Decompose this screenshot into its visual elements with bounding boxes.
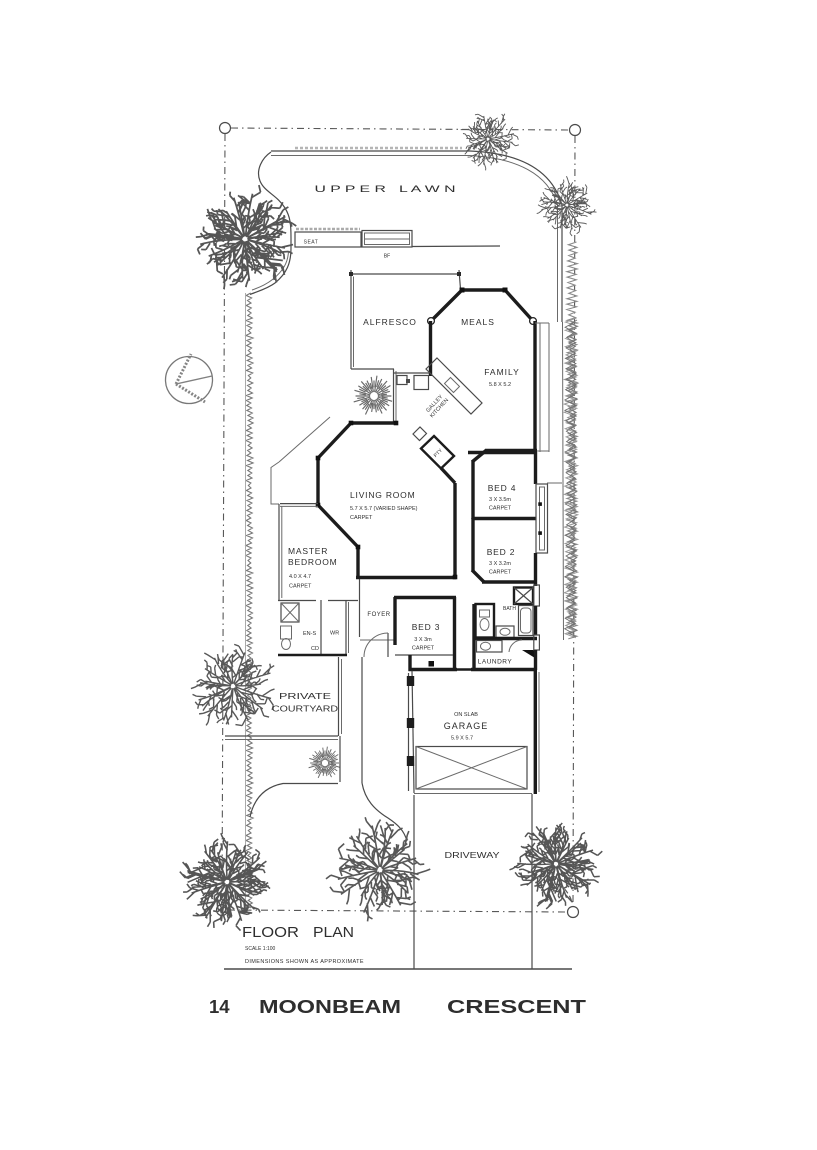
svg-text:BED 4: BED 4 bbox=[488, 483, 517, 493]
svg-text:CRESCENT: CRESCENT bbox=[447, 996, 587, 1017]
svg-text:4.0 X 4.7: 4.0 X 4.7 bbox=[289, 574, 311, 580]
svg-text:MEALS: MEALS bbox=[461, 317, 495, 327]
svg-text:EN-S: EN-S bbox=[303, 631, 316, 637]
svg-text:5.7 X 5.7 (VARIED SHAPE): 5.7 X 5.7 (VARIED SHAPE) bbox=[350, 506, 418, 512]
svg-text:FOYER: FOYER bbox=[367, 612, 390, 618]
svg-text:WR: WR bbox=[330, 631, 339, 637]
svg-text:CARPET: CARPET bbox=[412, 646, 435, 652]
svg-text:LAUNDRY: LAUNDRY bbox=[478, 659, 513, 666]
svg-text:FAMILY: FAMILY bbox=[484, 367, 520, 377]
svg-text:DIMENSIONS SHOWN AS APPROXIMAT: DIMENSIONS SHOWN AS APPROXIMATE bbox=[245, 959, 364, 965]
svg-text:GARAGE: GARAGE bbox=[444, 721, 489, 731]
svg-text:COURTYARD: COURTYARD bbox=[272, 704, 338, 714]
svg-text:CARPET: CARPET bbox=[489, 506, 512, 512]
svg-text:LIVING ROOM: LIVING ROOM bbox=[350, 490, 415, 500]
svg-text:BED 3: BED 3 bbox=[412, 622, 441, 632]
svg-text:BF: BF bbox=[384, 254, 390, 260]
svg-text:MASTER: MASTER bbox=[288, 546, 328, 556]
svg-text:PLAN: PLAN bbox=[313, 924, 354, 941]
svg-text:5.8 X 5.2: 5.8 X 5.2 bbox=[489, 382, 511, 388]
svg-text:MOONBEAM: MOONBEAM bbox=[259, 996, 401, 1017]
svg-text:BEDROOM: BEDROOM bbox=[288, 557, 338, 567]
svg-text:BED 2: BED 2 bbox=[487, 547, 516, 557]
svg-text:FLOOR: FLOOR bbox=[242, 924, 299, 941]
svg-text:5.9 X 5.7: 5.9 X 5.7 bbox=[451, 736, 473, 742]
svg-text:SEAT: SEAT bbox=[304, 240, 319, 246]
svg-text:SCALE 1:100: SCALE 1:100 bbox=[245, 946, 276, 952]
svg-text:ALFRESCO: ALFRESCO bbox=[363, 317, 417, 327]
svg-text:CARPET: CARPET bbox=[489, 570, 512, 576]
svg-text:PRIVATE: PRIVATE bbox=[279, 691, 331, 701]
svg-text:3 X 3.2m: 3 X 3.2m bbox=[489, 561, 511, 567]
svg-text:CD: CD bbox=[311, 646, 319, 652]
svg-text:14: 14 bbox=[209, 996, 230, 1017]
svg-text:CARPET: CARPET bbox=[289, 584, 312, 590]
svg-text:ON SLAB: ON SLAB bbox=[454, 712, 478, 718]
svg-text:3 X 3m: 3 X 3m bbox=[414, 637, 432, 643]
svg-text:BATH: BATH bbox=[503, 606, 516, 612]
svg-text:3 X 3.5m: 3 X 3.5m bbox=[489, 497, 511, 503]
svg-text:U P P E R L A W N: U P P E R L A W N bbox=[315, 184, 456, 194]
svg-text:CARPET: CARPET bbox=[350, 515, 373, 521]
svg-text:DRIVEWAY: DRIVEWAY bbox=[445, 851, 501, 860]
